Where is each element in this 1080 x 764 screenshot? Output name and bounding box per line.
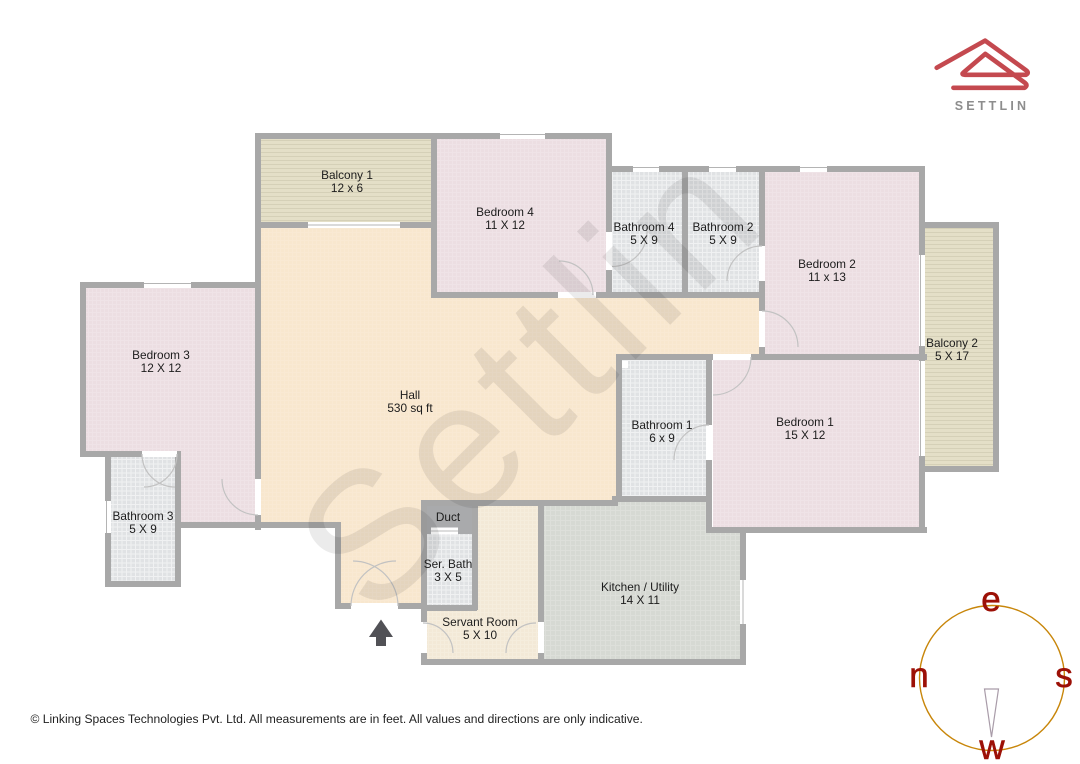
svg-text:© Linking Spaces Technologies: © Linking Spaces Technologies Pvt. Ltd. … [31, 712, 643, 726]
svg-text:Ser. Bath: Ser. Bath [424, 557, 473, 571]
svg-text:12 x 6: 12 x 6 [331, 181, 364, 195]
svg-text:12 X 12: 12 X 12 [141, 361, 182, 375]
svg-text:Bathroom 4: Bathroom 4 [614, 220, 675, 234]
svg-text:s: s [1055, 656, 1073, 695]
svg-text:Kitchen / Utility: Kitchen / Utility [601, 580, 679, 594]
svg-text:Bathroom 3: Bathroom 3 [113, 509, 174, 523]
svg-text:Balcony 2: Balcony 2 [926, 336, 978, 350]
svg-text:Servant Room: Servant Room [442, 615, 518, 629]
svg-text:3 X 5: 3 X 5 [434, 570, 462, 584]
svg-text:11 X 12: 11 X 12 [485, 218, 525, 232]
svg-text:Bedroom 1: Bedroom 1 [776, 415, 834, 429]
svg-text:w: w [978, 728, 1005, 764]
svg-text:5 X 9: 5 X 9 [630, 233, 658, 247]
svg-text:Duct: Duct [436, 510, 461, 524]
svg-text:e: e [981, 580, 1000, 619]
svg-text:Bedroom 4: Bedroom 4 [476, 205, 534, 219]
svg-text:15 X 12: 15 X 12 [785, 428, 826, 442]
svg-text:5 X 10: 5 X 10 [463, 628, 498, 642]
svg-text:Bedroom 3: Bedroom 3 [132, 348, 190, 362]
svg-text:Bedroom 2: Bedroom 2 [798, 257, 856, 271]
svg-text:5 X 17: 5 X 17 [935, 349, 969, 363]
svg-text:11 x 13: 11 x 13 [808, 270, 846, 284]
svg-text:Bathroom 1: Bathroom 1 [632, 418, 693, 432]
svg-text:Bathroom 2: Bathroom 2 [693, 220, 754, 234]
svg-text:Hall: Hall [400, 388, 420, 402]
svg-text:SETTLIN: SETTLIN [955, 99, 1029, 113]
svg-text:5 X 9: 5 X 9 [129, 522, 157, 536]
svg-text:6 x 9: 6 x 9 [649, 431, 675, 445]
svg-text:Balcony 1: Balcony 1 [321, 168, 373, 182]
svg-text:530 sq ft: 530 sq ft [387, 401, 433, 415]
svg-text:5 X 9: 5 X 9 [709, 233, 737, 247]
svg-text:n: n [909, 656, 928, 695]
svg-text:14 X 11: 14 X 11 [620, 593, 660, 607]
